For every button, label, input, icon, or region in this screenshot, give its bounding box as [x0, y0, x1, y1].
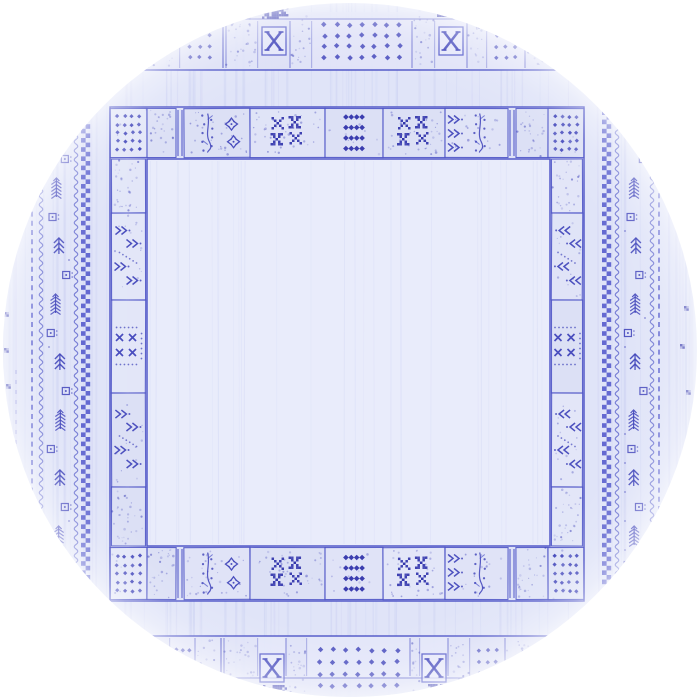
round-rug-graphic	[0, 0, 700, 700]
outer-panel-speckle	[152, 641, 170, 695]
page: { "image": { "kind": "top-view photo of …	[0, 0, 700, 700]
rim-highlight	[1, 1, 699, 699]
rug-product-image	[0, 0, 700, 700]
